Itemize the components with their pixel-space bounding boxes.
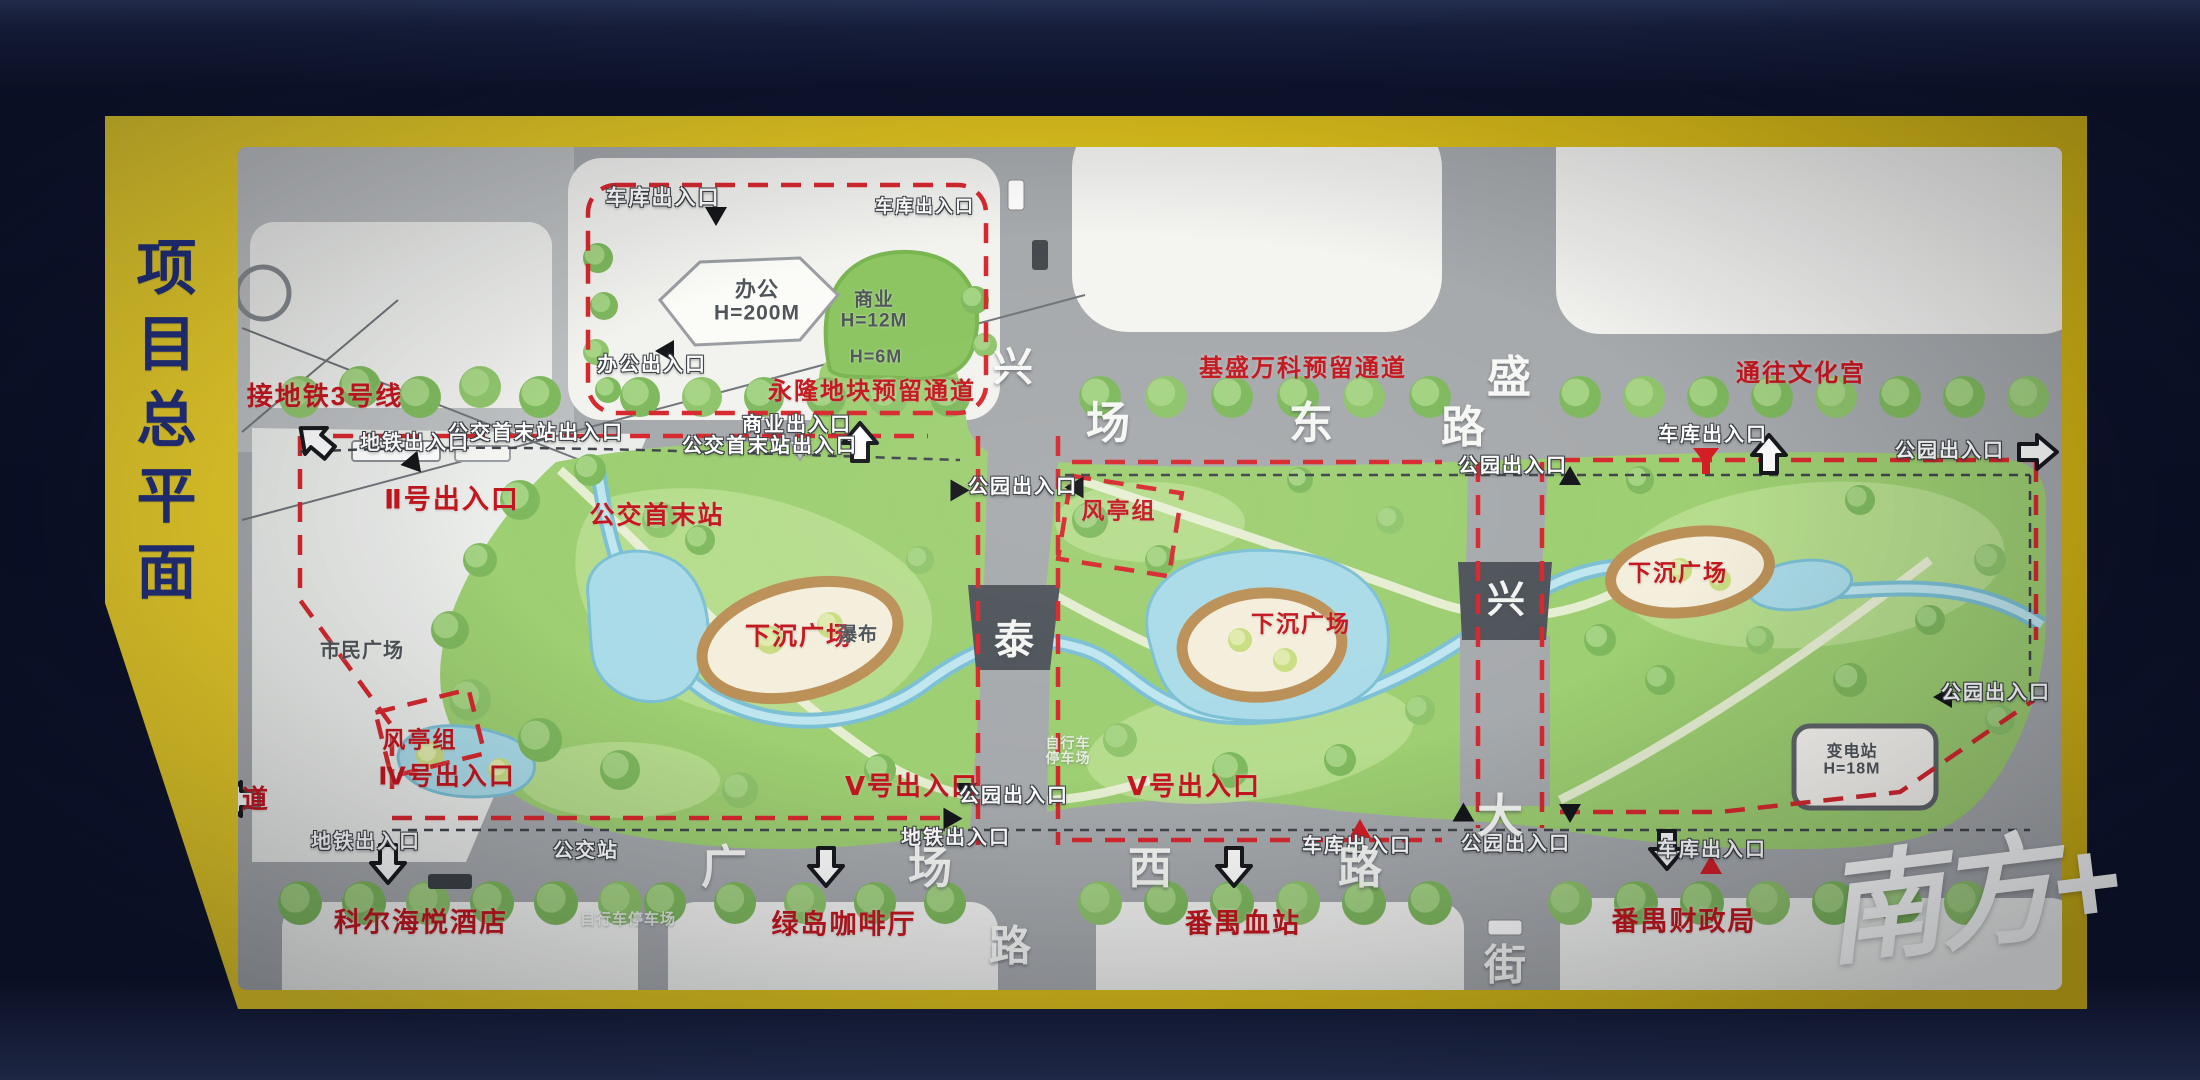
commercial-mound (826, 252, 977, 379)
nanfang-plus-watermark: 南方+ (1813, 782, 2131, 987)
photo-of-masterplan-board: { "board": { "title": "项目总平面" }, "waterm… (0, 0, 2200, 1080)
